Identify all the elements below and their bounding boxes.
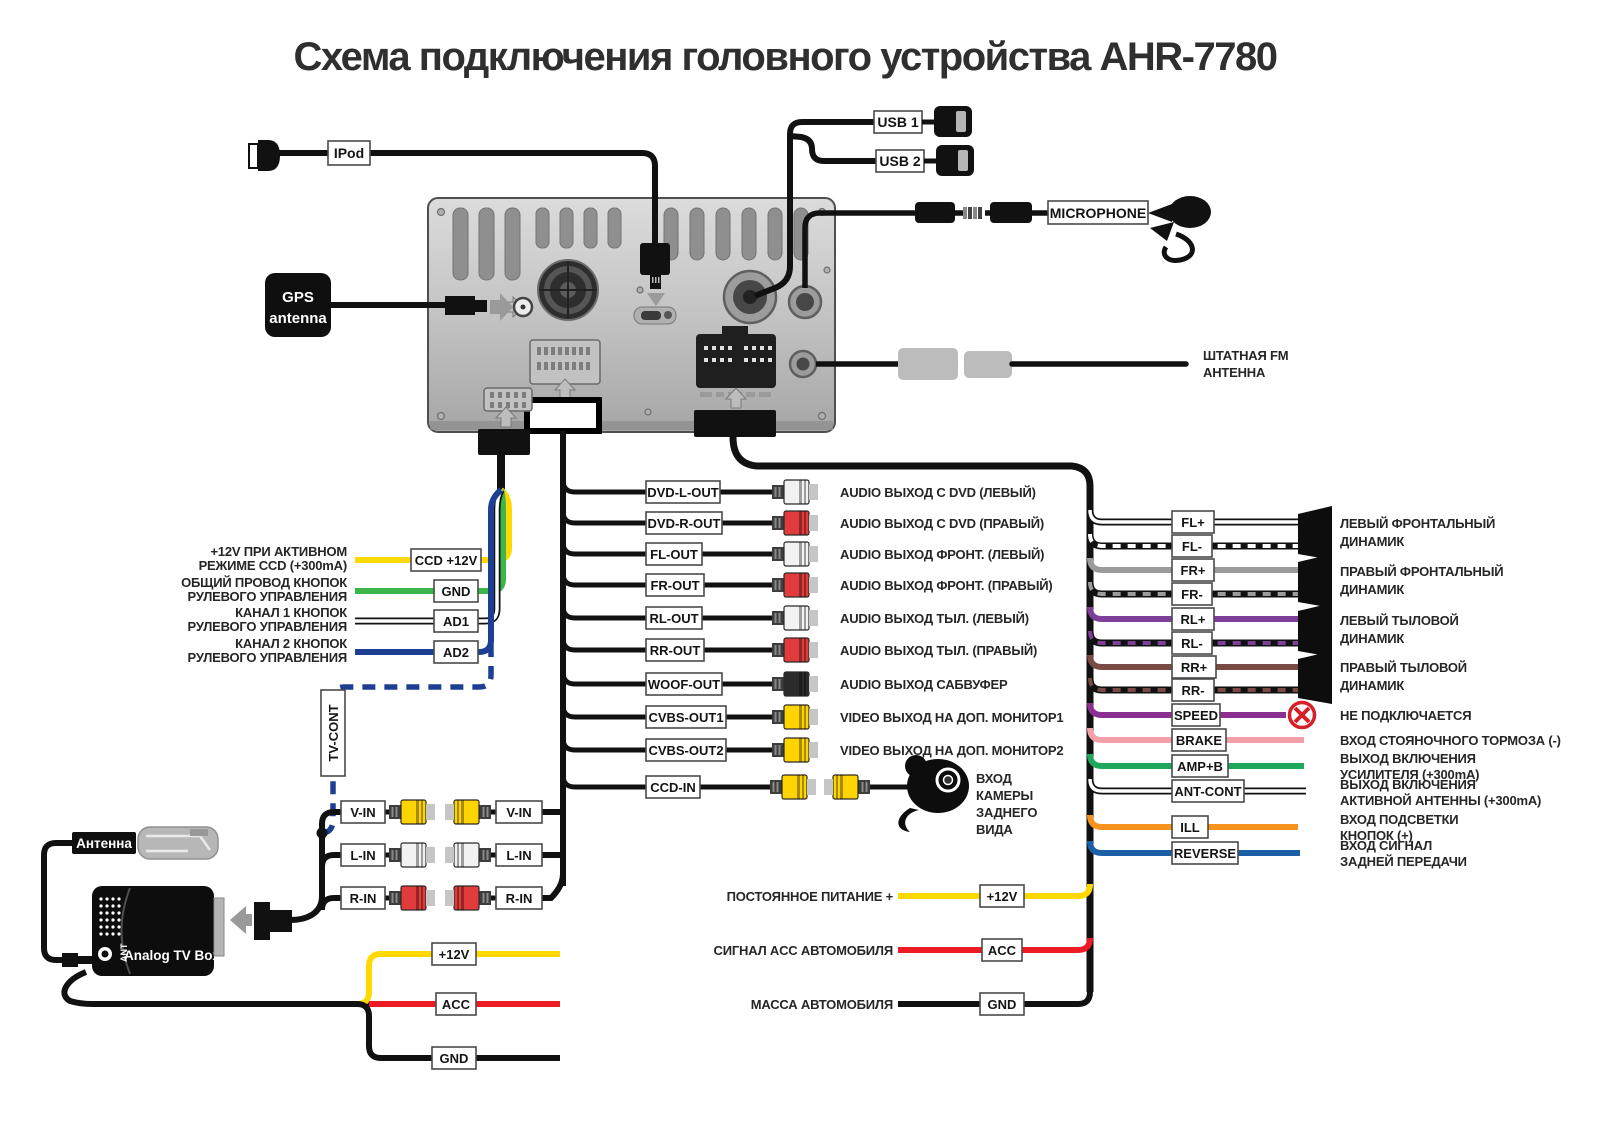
page-title: Схема подключения головного устройства A… <box>294 35 1277 79</box>
rca-white-female-icon <box>445 843 491 867</box>
speaker-connector-rl-icon <box>1298 603 1332 657</box>
rca-red-female-icon <box>445 886 491 910</box>
tv-box-port-icon <box>214 898 224 956</box>
ad1-tag: AD1 <box>443 614 469 629</box>
speaker-connector-fl-icon <box>1298 506 1332 560</box>
spk-tag-6: RR+ <box>1181 660 1208 675</box>
av-out-rows: DVD-L-OUT AUDIO ВЫХОД С DVD (ЛЕВЫЙ) DVD-… <box>646 480 1063 837</box>
ad2-tag: AD2 <box>443 645 469 660</box>
rca-white-icon <box>772 606 818 630</box>
spk-group-1-l2: ДИНАМИК <box>1340 582 1404 597</box>
usb1-label: USB 1 <box>877 114 918 130</box>
ad1-desc-1: КАНАЛ 1 КНОПОК <box>235 605 347 620</box>
camera-desc-4: ВИДА <box>976 822 1013 837</box>
head-unit-rear-panel <box>428 198 835 455</box>
rca-yellow-icon <box>389 800 435 824</box>
ctl-desc-5b: ЗАДНЕЙ ПЕРЕДАЧИ <box>1340 854 1467 869</box>
tv-pwr-tag-0: +12V <box>439 947 470 962</box>
rca-yellow-icon <box>770 775 816 799</box>
ctl-tag-0: SPEED <box>1174 708 1218 723</box>
spk-tag-3: FR- <box>1181 587 1203 602</box>
steering-wires: CCD +12V GND AD1 AD2 +12V ПРИ АКТИВНОМ Р… <box>181 455 509 833</box>
main-power-wires: +12V ACC GND ПОСТОЯННОЕ ПИТАНИЕ + СИГНАЛ… <box>714 884 1090 1015</box>
ctl-desc-4a: ВХОД ПОДСВЕТКИ <box>1340 812 1458 827</box>
iso-plug <box>694 410 776 437</box>
out-tag-4: RL-OUT <box>649 611 698 626</box>
rca-yellow-icon <box>772 705 818 729</box>
gps-plug-tip-icon <box>475 300 487 312</box>
camera-desc-1: ВХОД <box>976 771 1013 786</box>
ctl-tag-4: ILL <box>1180 820 1200 835</box>
ad2-desc-1: КАНАЛ 2 КНОПОК <box>235 636 347 651</box>
camera-desc-3: ЗАДНЕГО <box>976 805 1037 820</box>
rin-tag-left: R-IN <box>350 891 377 906</box>
out-tag-0: DVD-L-OUT <box>647 485 719 500</box>
mic-jack-tip-icon <box>963 207 982 219</box>
vin-tag-left: V-IN <box>350 805 375 820</box>
tv-box-arrow-icon <box>230 906 252 934</box>
fm-connector1-icon <box>898 348 958 380</box>
lin-tag-left: L-IN <box>350 848 375 863</box>
ccd-in-tag: CCD-IN <box>650 780 696 795</box>
ad1-desc-2: РУЛЕВОГО УПРАВЛЕНИЯ <box>188 619 347 634</box>
out-tag-6: WOOF-OUT <box>648 677 720 692</box>
tv-box-section: Антенна ANT Analog TV Box <box>44 827 560 1069</box>
fm-antenna-branch: ШТАТНАЯ FM АНТЕННА <box>816 348 1288 380</box>
usb2-label: USB 2 <box>879 153 920 169</box>
ccd12v-desc-1: +12V ПРИ АКТИВНОМ <box>210 544 347 559</box>
tv-box-label: Analog TV Box <box>124 948 220 963</box>
mic-plug1-icon <box>915 202 955 223</box>
spk-group-1-l1: ПРАВЫЙ ФРОНТАЛЬНЫЙ <box>1340 564 1503 579</box>
out-desc-1: AUDIO ВЫХОД С DVD (ПРАВЫЙ) <box>840 516 1044 531</box>
out-desc-4: AUDIO ВЫХОД ТЫЛ. (ЛЕВЫЙ) <box>840 611 1029 626</box>
rca-white-icon <box>772 542 818 566</box>
ccd12v-tag: CCD +12V <box>415 553 478 568</box>
ctl-tag-5: REVERSE <box>1174 846 1236 861</box>
pwr-tag-1: ACC <box>988 943 1017 958</box>
rca-red-icon <box>772 573 818 597</box>
fm-antenna-label-2: АНТЕННА <box>1203 365 1266 380</box>
rca-red-icon <box>389 886 435 910</box>
ccd12v-desc-2: РЕЖИМЕ CCD (+300mA) <box>199 558 347 573</box>
lin-tag-right: L-IN <box>506 848 531 863</box>
pwr-tag-2: GND <box>988 997 1017 1012</box>
tv-cont-tag: TV-CONT <box>326 704 341 761</box>
ctl-desc-2a: ВЫХОД ВКЛЮЧЕНИЯ <box>1340 751 1476 766</box>
spk-tag-5: RL- <box>1181 636 1203 651</box>
microphone-branch: MICROPHONE <box>805 196 1211 288</box>
out-desc-2: AUDIO ВЫХОД ФРОНТ. (ЛЕВЫЙ) <box>840 547 1044 562</box>
spk-group-2-l2: ДИНАМИК <box>1340 631 1404 646</box>
out-tag-3: FR-OUT <box>650 578 699 593</box>
spk-group-2-l1: ЛЕВЫЙ ТЫЛОВОЙ <box>1340 613 1459 628</box>
out-tag-8: CVBS-OUT2 <box>648 743 723 758</box>
gnd-desc-2: РУЛЕВОГО УПРАВЛЕНИЯ <box>188 589 347 604</box>
rca-yellow-icon <box>772 738 818 762</box>
mic-plug2-icon <box>990 202 1032 223</box>
ctl-tag-1: BRAKE <box>1176 733 1223 748</box>
speaker-connector-fr-icon <box>1298 554 1332 608</box>
rear-camera-icon <box>898 755 969 832</box>
spk-tag-2: FR+ <box>1181 563 1206 578</box>
cooling-fan-icon <box>538 260 598 320</box>
usb-branch: USB 1 USB 2 <box>755 106 974 296</box>
speaker-connector-rr-icon <box>1298 651 1332 704</box>
ctl-desc-3a: ВЫХОД ВКЛЮЧЕНИЯ <box>1340 777 1476 792</box>
microphone-label: MICROPHONE <box>1050 205 1146 221</box>
antenna-plug-tip-icon <box>78 956 92 964</box>
out-tag-5: RR-OUT <box>650 643 701 658</box>
spk-tag-1: FL- <box>1182 539 1202 554</box>
rca-red-icon <box>772 511 818 535</box>
ctl-desc-1: ВХОД СТОЯНОЧНОГО ТОРМОЗА (-) <box>1340 733 1561 748</box>
out-tag-7: CVBS-OUT1 <box>648 710 723 725</box>
rca-yellow-female-icon <box>824 775 870 799</box>
tv-antenna-icon <box>138 827 218 859</box>
fm-jack-icon <box>790 351 816 377</box>
av-in-rows: V-IN V-IN L-IN L-IN R-IN R-IN <box>290 800 563 920</box>
steering-plug <box>478 429 530 455</box>
pwr-tag-0: +12V <box>987 889 1018 904</box>
tv-box-t-plug-icon <box>254 902 292 940</box>
microphone-icon <box>1148 196 1211 261</box>
pwr-desc-1: СИГНАЛ ACC АВТОМОБИЛЯ <box>714 943 893 958</box>
ad2-desc-2: РУЛЕВОГО УПРАВЛЕНИЯ <box>188 650 347 665</box>
rca-yellow-female-icon <box>445 800 491 824</box>
out-desc-6: AUDIO ВЫХОД САБВУФЕР <box>840 677 1008 692</box>
rca-red-icon <box>772 638 818 662</box>
tv-pwr-tag-1: ACC <box>442 997 471 1012</box>
wiring-diagram: Схема подключения головного устройства A… <box>0 0 1600 1131</box>
iso-connector-icon <box>696 326 776 408</box>
vin-tag-right: V-IN <box>506 805 531 820</box>
ctl-tag-2: AMP+B <box>1177 759 1223 774</box>
usb-round-connector-icon <box>724 271 776 323</box>
gps-antenna-label-1: GPS <box>282 289 314 306</box>
ipod-label: IPod <box>334 145 364 161</box>
fm-antenna-label-1: ШТАТНАЯ FM <box>1203 348 1288 363</box>
antenna-label: Антенна <box>76 836 132 851</box>
out-desc-3: AUDIO ВЫХОД ФРОНТ. (ПРАВЫЙ) <box>840 578 1053 593</box>
ctl-tag-3: ANT-CONT <box>1174 784 1241 799</box>
tv-pwr-tag-2: GND <box>440 1051 469 1066</box>
junction-dot <box>317 828 328 839</box>
control-wires: SPEED BRAKE AMP+B ANT-CONT ILL REVERSE Н… <box>1090 703 1561 870</box>
rca-white-icon <box>389 843 435 867</box>
spk-group-3-l1: ПРАВЫЙ ТЫЛОВОЙ <box>1340 660 1467 675</box>
usb2-connector-icon <box>936 145 974 176</box>
camera-desc-2: КАМЕРЫ <box>976 788 1033 803</box>
antenna-plug-icon <box>62 953 78 967</box>
gnd-tag: GND <box>442 584 471 599</box>
rca-black-icon <box>772 672 818 696</box>
spk-tag-4: RL+ <box>1181 612 1206 627</box>
out-desc-8: VIDEO ВЫХОД НА ДОП. МОНИТОР2 <box>840 743 1063 758</box>
rca-white-icon <box>772 480 818 504</box>
fm-connector2-icon <box>964 351 1012 378</box>
out-desc-5: AUDIO ВЫХОД ТЫЛ. (ПРАВЫЙ) <box>840 643 1037 658</box>
ctl-desc-3b: АКТИВНОЙ АНТЕННЫ (+300mA) <box>1340 793 1541 808</box>
out-tag-1: DVD-R-OUT <box>648 516 721 531</box>
ctl-desc-5a: ВХОД СИГНАЛ <box>1340 838 1432 853</box>
out-desc-0: AUDIO ВЫХОД С DVD (ЛЕВЫЙ) <box>840 485 1036 500</box>
usb1-connector-icon <box>934 106 972 137</box>
av-white-plug <box>527 400 599 431</box>
spk-group-0-l2: ДИНАМИК <box>1340 534 1404 549</box>
out-desc-7: VIDEO ВЫХОД НА ДОП. МОНИТОР1 <box>840 710 1063 725</box>
analog-tv-box: ANT Analog TV Box <box>92 886 224 976</box>
out-tag-2: FL-OUT <box>650 547 698 562</box>
not-connected-icon <box>1290 703 1315 728</box>
pwr-desc-0: ПОСТОЯННОЕ ПИТАНИЕ + <box>727 889 894 904</box>
spk-tag-0: FL+ <box>1181 515 1205 530</box>
gps-antenna-label-2: antenna <box>269 310 327 327</box>
speaker-wires: FL+ FL- FR+ FR- RL+ RL- RR+ RR- ЛЕВЫЙ ФР… <box>1090 506 1503 704</box>
ipod-connector-icon <box>249 140 280 171</box>
gnd-desc-1: ОБЩИЙ ПРОВОД КНОПОК <box>181 575 347 590</box>
rin-tag-right: R-IN <box>506 891 533 906</box>
mic-jack-icon <box>789 286 821 318</box>
pwr-desc-2: МАССА АВТОМОБИЛЯ <box>751 997 893 1012</box>
spk-group-3-l2: ДИНАМИК <box>1340 678 1404 693</box>
spk-tag-7: RR- <box>1181 683 1204 698</box>
spk-group-0-l1: ЛЕВЫЙ ФРОНТАЛЬНЫЙ <box>1340 516 1495 531</box>
gps-plug-icon <box>445 296 475 315</box>
ctl-desc-0: НЕ ПОДКЛЮЧАЕТСЯ <box>1340 708 1471 723</box>
